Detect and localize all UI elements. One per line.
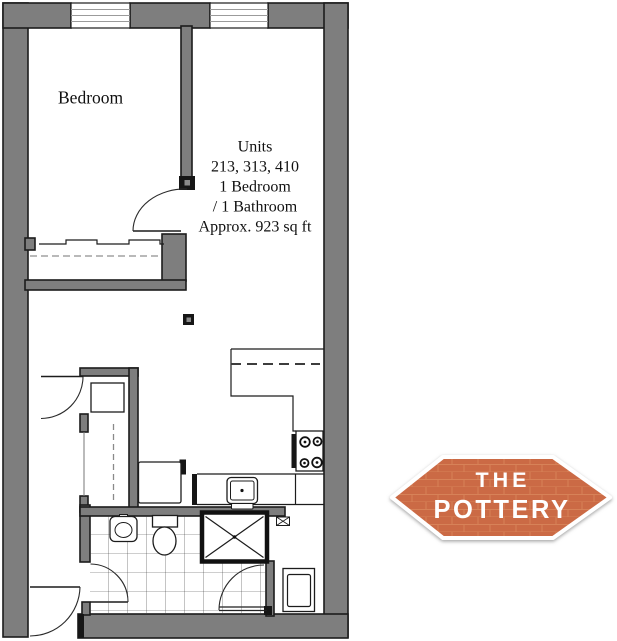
laundry-closet-door (41, 377, 83, 419)
bathroom-sink-basin (115, 523, 132, 538)
stove (292, 431, 324, 471)
kitchen (197, 349, 324, 509)
bathroom-door-stub (82, 602, 90, 615)
bedroom-divider-wall (181, 26, 192, 177)
right-wall (324, 3, 348, 637)
stove-handle (292, 434, 297, 468)
water-heater (283, 569, 315, 612)
washer-dryer (91, 383, 124, 412)
top-wall-left (3, 3, 71, 28)
toilet-bowl (153, 527, 176, 555)
hall-wall-stub-upper (80, 414, 88, 432)
unit-info-line-3: 1 Bedroom (219, 179, 291, 196)
top-wall-middle (130, 3, 210, 28)
logo-line-2: POTTERY (434, 496, 571, 524)
closet-right-wall (162, 234, 186, 281)
toilet-tank (153, 516, 178, 528)
bedroom-label: Bedroom (58, 88, 124, 108)
shower (202, 513, 267, 562)
closet-sliding-door-track (39, 240, 164, 244)
kitchen-counter-bottom (197, 474, 324, 505)
logo-line-1: THE (476, 468, 531, 492)
toilet (153, 516, 178, 556)
living-room-post-core (187, 318, 192, 323)
entry-door-swing-arc (30, 587, 80, 636)
bedroom-door (133, 189, 187, 231)
bottom-wall (78, 614, 348, 638)
window-right (210, 3, 268, 28)
bedroom-closet (30, 240, 164, 256)
divider-post-core (185, 180, 191, 186)
built-in-counter (139, 462, 182, 503)
kitchen-sink-front (232, 504, 254, 510)
unit-info-line-5: Approx. 923 sq ft (199, 219, 312, 236)
bottom-wall-cap (78, 614, 84, 638)
kitchen-counter-top (231, 349, 324, 431)
water-heater-inner (288, 575, 311, 607)
unit-info-line-1: Units (238, 139, 273, 156)
unit-info: Units 213, 313, 410 1 Bedroom / 1 Bathro… (199, 139, 312, 236)
pottery-logo: THE POTTERY (392, 457, 610, 538)
floor-plan-page: Bedroom Units 213, 313, 410 1 Bedroom / … (0, 0, 617, 641)
entry-door (30, 587, 80, 636)
kitchen-sink (227, 478, 258, 510)
kitchen-sink-drain (240, 489, 243, 492)
counter-end-cap (192, 474, 197, 505)
laundry-door-swing-arc (41, 377, 83, 419)
unit-info-line-2: 213, 313, 410 (211, 159, 299, 176)
laundry-closet-right-wall (129, 368, 138, 512)
bathroom-sink (110, 515, 137, 542)
unit-info-line-4: / 1 Bathroom (213, 199, 298, 216)
closet-bottom-wall (25, 280, 186, 290)
bathroom (90, 513, 315, 614)
window-left (71, 3, 130, 28)
closet-left-stub (25, 238, 35, 250)
floor-plan: Bedroom Units 213, 313, 410 1 Bedroom / … (0, 0, 617, 641)
left-wall (3, 3, 28, 637)
shower-drain (233, 535, 237, 539)
bedroom-door-swing-arc (133, 189, 187, 231)
vent-icon (277, 517, 290, 526)
